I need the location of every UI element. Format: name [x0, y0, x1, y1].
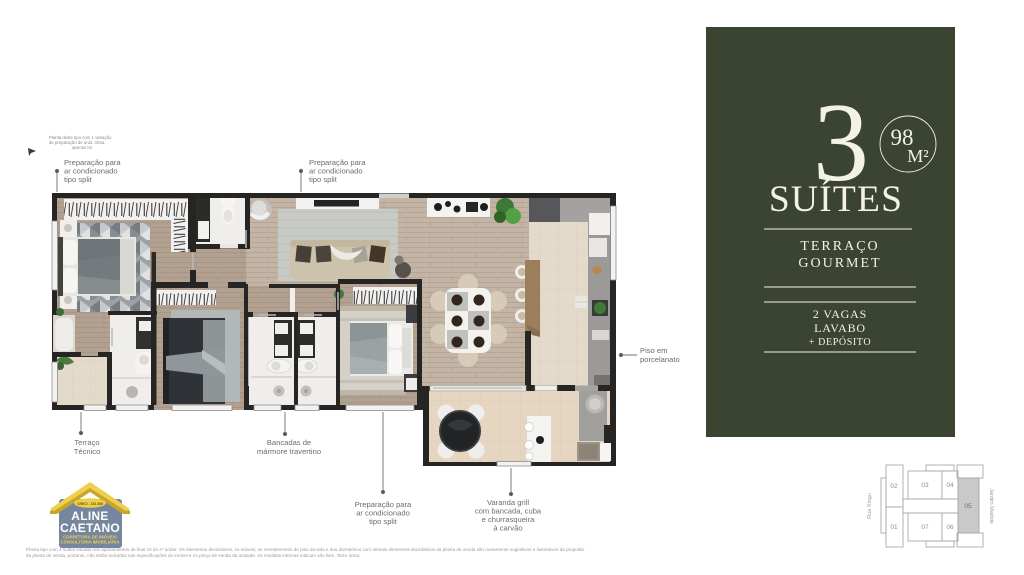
svg-text:porcelanato: porcelanato — [640, 355, 680, 364]
svg-text:05: 05 — [964, 503, 972, 510]
svg-text:LAVABO: LAVABO — [814, 321, 866, 335]
svg-text:SUÍTES: SUÍTES — [769, 178, 903, 220]
svg-text:Piso em: Piso em — [640, 346, 667, 355]
svg-text:07: 07 — [921, 524, 929, 531]
svg-text:CRECI - 152.366: CRECI - 152.366 — [77, 502, 103, 506]
svg-text:03: 03 — [921, 482, 929, 489]
svg-text:02: 02 — [890, 483, 898, 490]
svg-text:à carvão: à carvão — [493, 524, 522, 533]
svg-text:Jardim Matilde: Jardim Matilde — [988, 488, 994, 524]
svg-text:Terraço: Terraço — [74, 438, 99, 447]
svg-text:04: 04 — [946, 482, 954, 489]
svg-text:tipo split: tipo split — [309, 175, 338, 184]
svg-text:01: 01 — [890, 524, 898, 531]
svg-text:Técnico: Técnico — [74, 447, 101, 456]
svg-text:M²: M² — [907, 146, 928, 166]
svg-text:da planta de venda, portanto,: da planta de venda, portanto, não estão … — [26, 553, 361, 558]
svg-text:mármore travertino: mármore travertino — [257, 447, 321, 456]
svg-text:apenas 04: apenas 04 — [72, 145, 93, 150]
svg-text:tipo split: tipo split — [369, 517, 398, 526]
svg-text:2 VAGAS: 2 VAGAS — [813, 307, 867, 321]
svg-text:06: 06 — [946, 524, 954, 531]
svg-text:+ DEPÓSITO: + DEPÓSITO — [809, 336, 871, 348]
svg-text:Rua Xingu: Rua Xingu — [867, 493, 873, 519]
svg-text:CAETANO: CAETANO — [60, 521, 120, 535]
svg-text:CONSULTORIA IMOBILIÁRIA: CONSULTORIA IMOBILIÁRIA — [61, 540, 120, 545]
svg-text:Bancadas de: Bancadas de — [267, 438, 311, 447]
svg-text:tipo split: tipo split — [64, 175, 93, 184]
svg-text:TERRAÇO: TERRAÇO — [800, 239, 879, 254]
svg-text:GOURMET: GOURMET — [798, 256, 881, 271]
